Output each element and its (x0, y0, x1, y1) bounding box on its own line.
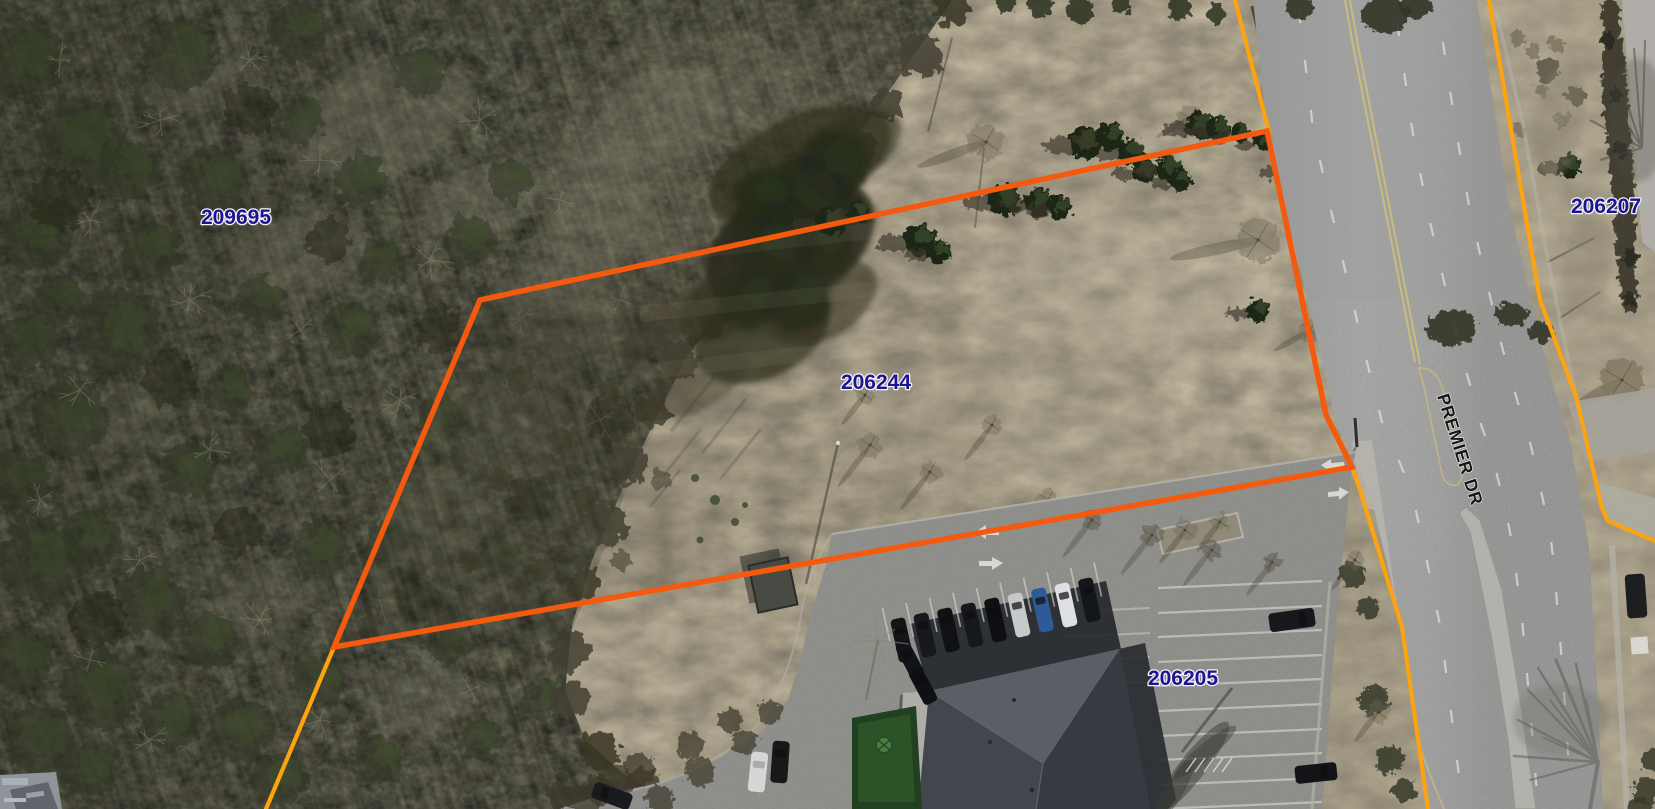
svg-text:206205: 206205 (1148, 667, 1218, 690)
svg-text:206207: 206207 (1571, 195, 1641, 218)
svg-text:209695: 209695 (201, 206, 271, 229)
svg-text:206244: 206244 (841, 371, 911, 394)
